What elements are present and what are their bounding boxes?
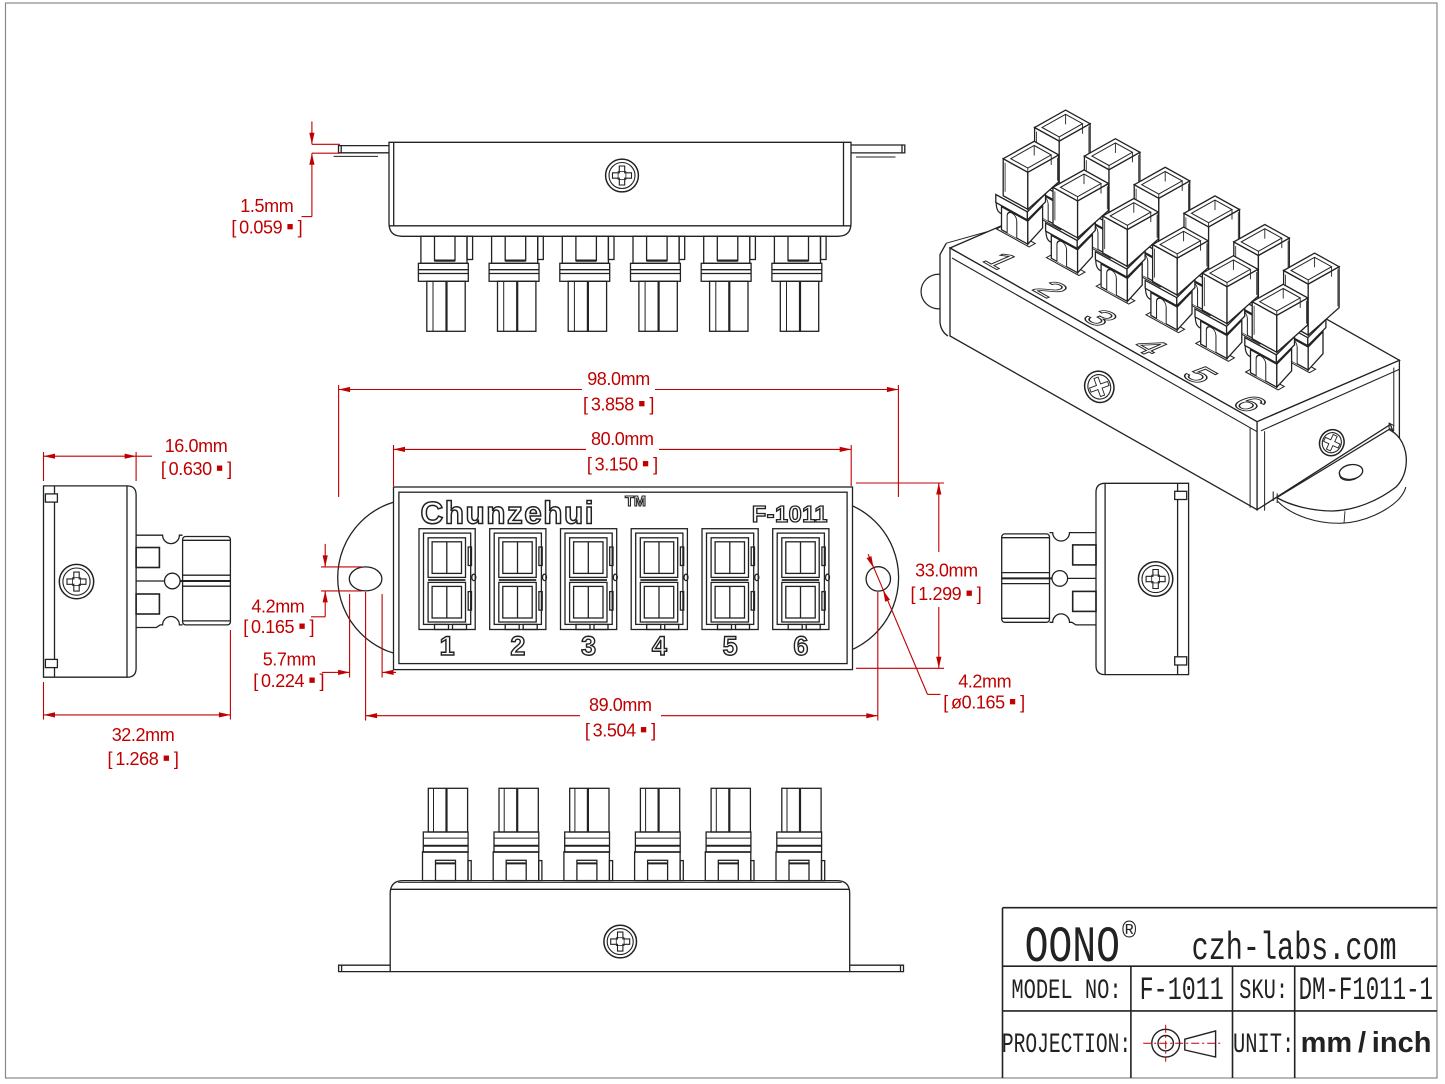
svg-text:6: 6 [793, 631, 808, 661]
svg-text:Chunzehui: Chunzehui [421, 495, 595, 531]
svg-text:98.0mm: 98.0mm [587, 369, 650, 389]
svg-text:5: 5 [723, 631, 738, 661]
svg-text:4.2mm: 4.2mm [958, 672, 1011, 692]
svg-text:SKU:: SKU: [1239, 976, 1288, 1007]
svg-text:UNIT:: UNIT: [1233, 1030, 1294, 1061]
svg-text:4: 4 [652, 631, 667, 661]
svg-text:F-1011: F-1011 [1140, 974, 1224, 1009]
svg-text:F-1011: F-1011 [752, 501, 828, 527]
svg-text:3: 3 [581, 631, 596, 661]
svg-text:2: 2 [510, 631, 525, 661]
svg-text:czh-labs.com: czh-labs.com [1192, 928, 1397, 971]
svg-text:80.0mm: 80.0mm [591, 429, 654, 449]
svg-text:1.5mm: 1.5mm [240, 196, 293, 216]
svg-text:®: ® [1122, 919, 1137, 946]
svg-text:DM-F1011-1: DM-F1011-1 [1299, 974, 1433, 1010]
svg-text:MODEL NO:: MODEL NO: [1011, 976, 1121, 1007]
svg-text:16.0mm: 16.0mm [165, 436, 228, 456]
svg-text:5.7mm: 5.7mm [263, 650, 316, 670]
svg-text:1: 1 [440, 631, 455, 661]
svg-text:mm / inch: mm / inch [1301, 1027, 1432, 1059]
svg-text:4.2mm: 4.2mm [251, 596, 304, 616]
svg-text:33.0mm: 33.0mm [915, 560, 978, 580]
svg-text:OONO: OONO [1025, 919, 1120, 977]
svg-text:32.2mm: 32.2mm [112, 725, 175, 745]
svg-text:TM: TM [625, 494, 646, 510]
svg-text:PROJECTION:: PROJECTION: [1002, 1030, 1131, 1061]
svg-text:89.0mm: 89.0mm [589, 695, 652, 715]
